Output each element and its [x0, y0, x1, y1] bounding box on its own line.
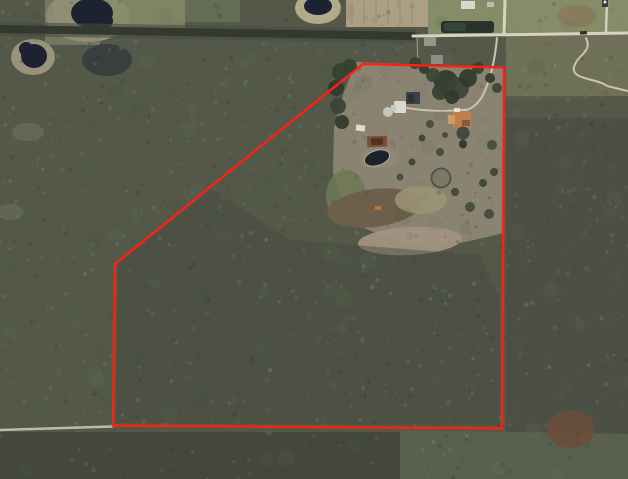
- canopy-speck: [592, 195, 596, 199]
- canopy-speck: [62, 224, 66, 228]
- canopy-speck: [229, 126, 232, 129]
- canopy-speck: [175, 341, 178, 344]
- canopy-speck: [446, 403, 450, 407]
- canopy-speck: [353, 113, 356, 116]
- canopy-blob: [196, 290, 211, 305]
- canopy-speck: [152, 206, 157, 211]
- canopy-speck: [571, 19, 573, 21]
- canopy-speck: [131, 240, 135, 244]
- canopy-speck: [588, 463, 591, 466]
- canopy-speck: [129, 362, 132, 365]
- canopy-speck: [397, 390, 401, 394]
- canopy-speck: [108, 447, 112, 451]
- canopy-speck: [54, 198, 56, 200]
- canopy-speck: [611, 241, 613, 243]
- canopy-blob: [131, 350, 145, 364]
- canopy-speck: [175, 162, 177, 164]
- canopy-speck: [438, 217, 440, 219]
- canopy-speck: [200, 167, 202, 169]
- canopy-speck: [236, 379, 238, 381]
- canopy-speck: [468, 398, 470, 400]
- canopy-speck: [404, 59, 406, 61]
- canopy-speck: [505, 264, 510, 269]
- canopy-speck: [152, 434, 156, 438]
- canopy-speck: [604, 91, 608, 95]
- canopy-speck: [1, 368, 5, 372]
- canopy-speck: [76, 430, 79, 433]
- canopy-blob: [587, 83, 594, 90]
- canopy-speck: [365, 122, 367, 124]
- canopy-speck: [216, 470, 218, 472]
- canopy-speck: [82, 359, 86, 363]
- canopy-speck: [614, 326, 616, 328]
- canopy-speck: [185, 196, 190, 201]
- canopy-speck: [364, 394, 368, 398]
- canopy-speck: [518, 84, 522, 88]
- canopy-speck: [590, 180, 592, 182]
- canopy-speck: [550, 455, 553, 458]
- canopy-speck: [538, 19, 542, 23]
- canopy-speck: [610, 461, 613, 464]
- canopy-speck: [263, 182, 266, 185]
- canopy-speck: [8, 338, 12, 342]
- canopy-speck: [368, 209, 370, 211]
- canopy-speck: [359, 175, 364, 180]
- canopy-speck: [494, 8, 497, 11]
- canopy-speck: [353, 50, 357, 54]
- canopy-speck: [11, 155, 15, 159]
- canopy-speck: [523, 202, 525, 204]
- canopy-blob: [370, 179, 385, 194]
- canopy-speck: [89, 227, 92, 230]
- canopy-speck: [612, 292, 615, 295]
- canopy-speck: [562, 195, 563, 196]
- canopy-speck: [292, 218, 295, 221]
- canopy-speck: [46, 308, 49, 311]
- canopy-speck: [448, 241, 452, 245]
- canopy-speck: [450, 5, 452, 7]
- canopy-blob: [85, 116, 95, 126]
- canopy-speck: [170, 447, 175, 452]
- canopy-speck: [592, 9, 596, 13]
- vehicle-on-road: [580, 31, 587, 35]
- canopy-speck: [68, 119, 71, 122]
- canopy-speck: [110, 355, 113, 358]
- canopy-speck: [201, 325, 203, 327]
- canopy-speck: [427, 235, 431, 239]
- canopy-speck: [619, 27, 621, 29]
- canopy-speck: [284, 17, 288, 21]
- canopy-speck: [206, 356, 209, 359]
- canopy-speck: [569, 456, 572, 459]
- canopy-speck: [139, 183, 143, 187]
- canopy-speck: [62, 38, 66, 42]
- canopy-speck: [461, 459, 465, 463]
- canopy-speck: [283, 329, 286, 332]
- canopy-speck: [392, 258, 395, 261]
- canopy-speck: [624, 319, 627, 322]
- canopy-speck: [261, 273, 264, 276]
- canopy-speck: [404, 403, 408, 407]
- canopy-speck: [396, 460, 397, 461]
- canopy-speck: [167, 377, 169, 379]
- canopy-speck: [544, 62, 546, 64]
- canopy-blob: [594, 205, 603, 214]
- canopy-speck: [512, 422, 514, 424]
- canopy-speck: [92, 466, 95, 469]
- canopy-blob: [196, 391, 211, 406]
- canopy-speck: [526, 246, 530, 250]
- canopy-speck: [524, 472, 526, 474]
- canopy-speck: [436, 190, 441, 195]
- canopy-speck: [572, 188, 577, 193]
- canopy-speck: [174, 339, 176, 341]
- canopy-speck: [469, 232, 472, 235]
- canopy-speck: [396, 147, 400, 151]
- canopy-speck: [279, 162, 283, 166]
- canopy-speck: [361, 206, 363, 208]
- canopy-speck: [60, 229, 64, 233]
- tree-canopy: [451, 188, 459, 196]
- canopy-speck: [207, 312, 209, 314]
- canopy-speck: [156, 209, 161, 214]
- canopy-speck: [25, 329, 27, 331]
- canopy-speck: [67, 350, 69, 352]
- canopy-speck: [617, 271, 619, 273]
- canopy-speck: [64, 292, 68, 296]
- canopy-speck: [232, 207, 236, 211]
- canopy-speck: [125, 302, 127, 304]
- canopy-speck: [487, 415, 490, 418]
- canopy-speck: [211, 77, 213, 79]
- canopy-speck: [488, 112, 490, 114]
- canopy-speck: [120, 79, 125, 84]
- canopy-speck: [583, 114, 586, 117]
- canopy-speck: [206, 224, 210, 228]
- canopy-speck: [396, 222, 398, 224]
- canopy-speck: [516, 147, 521, 152]
- canopy-speck: [186, 361, 188, 363]
- canopy-speck: [8, 67, 11, 70]
- canopy-speck: [482, 466, 484, 468]
- canopy-speck: [415, 246, 418, 249]
- canopy-speck: [384, 383, 387, 386]
- canopy-speck: [312, 435, 316, 439]
- canopy-speck: [283, 96, 286, 99]
- canopy-speck: [225, 372, 228, 375]
- canopy-speck: [595, 56, 597, 58]
- canopy-speck: [34, 240, 36, 242]
- canopy-speck: [63, 392, 66, 395]
- canopy-speck: [581, 97, 583, 99]
- canopy-blob: [355, 75, 373, 93]
- canopy-speck: [544, 83, 548, 87]
- tree-canopy: [490, 168, 498, 176]
- canopy-speck: [385, 416, 389, 420]
- canopy-speck: [584, 95, 589, 100]
- canopy-speck: [182, 442, 184, 444]
- canopy-speck: [133, 90, 137, 94]
- canopy-speck: [530, 99, 533, 102]
- canopy-speck: [248, 471, 252, 475]
- canopy-speck: [232, 96, 235, 99]
- tree-canopy: [487, 140, 497, 150]
- canopy-speck: [390, 140, 395, 145]
- canopy-speck: [253, 417, 255, 419]
- canopy-speck: [469, 163, 473, 167]
- canopy-speck: [26, 19, 28, 21]
- canopy-speck: [488, 197, 491, 200]
- canopy-speck: [42, 191, 45, 194]
- canopy-speck: [577, 175, 580, 178]
- canopy-speck: [249, 231, 254, 236]
- canopy-speck: [362, 264, 367, 269]
- canopy-speck: [445, 289, 447, 291]
- canopy-speck: [85, 373, 87, 375]
- canopy-speck: [144, 98, 147, 101]
- canopy-speck: [290, 74, 293, 77]
- canopy-speck: [613, 38, 617, 42]
- canopy-speck: [596, 400, 599, 403]
- canopy-speck: [339, 285, 343, 289]
- canopy-speck: [237, 470, 240, 473]
- canopy-speck: [388, 304, 390, 306]
- canopy-speck: [96, 122, 98, 124]
- canopy-speck: [81, 108, 86, 113]
- canopy-speck: [555, 113, 559, 117]
- canopy-speck: [490, 204, 493, 207]
- canopy-speck: [70, 283, 73, 286]
- canopy-speck: [67, 68, 70, 71]
- canopy-speck: [552, 3, 556, 7]
- canopy-blob: [19, 464, 32, 477]
- canopy-speck: [466, 159, 468, 161]
- canopy-blob: [123, 381, 129, 387]
- canopy-speck: [613, 356, 616, 359]
- canopy-speck: [176, 99, 179, 102]
- canopy-speck: [22, 399, 27, 404]
- canopy-speck: [35, 138, 39, 142]
- canopy-blob: [192, 5, 203, 16]
- canopy-speck: [386, 129, 388, 131]
- canopy-speck: [443, 452, 446, 455]
- canopy-speck: [243, 460, 248, 465]
- canopy-speck: [476, 299, 479, 302]
- canopy-speck: [76, 88, 78, 90]
- canopy-speck: [159, 278, 161, 280]
- canopy-speck: [494, 325, 496, 327]
- canopy-speck: [494, 134, 498, 138]
- canopy-speck: [47, 305, 49, 307]
- canopy-speck: [32, 155, 34, 157]
- canopy-speck: [8, 145, 11, 148]
- canopy-speck: [473, 172, 477, 176]
- canopy-speck: [609, 56, 614, 61]
- canopy-speck: [495, 295, 498, 298]
- canopy-speck: [433, 319, 435, 321]
- canopy-speck: [219, 319, 221, 321]
- canopy-speck: [566, 97, 571, 102]
- canopy-speck: [182, 239, 184, 241]
- canopy-speck: [559, 206, 562, 209]
- canopy-speck: [361, 275, 365, 279]
- canopy-speck: [401, 17, 403, 19]
- canopy-speck: [28, 242, 32, 246]
- canopy-speck: [472, 281, 476, 285]
- canopy-speck: [231, 11, 233, 13]
- canopy-blob: [332, 396, 342, 406]
- canopy-speck: [604, 382, 609, 387]
- canopy-speck: [509, 456, 511, 458]
- canopy-speck: [465, 219, 470, 224]
- canopy-speck: [51, 155, 55, 159]
- canopy-speck: [324, 207, 328, 211]
- canopy-speck: [371, 18, 375, 22]
- tree-canopy: [492, 83, 502, 93]
- canopy-speck: [75, 80, 76, 81]
- greenhouse-highlight: [444, 23, 466, 31]
- canopy-speck: [230, 63, 233, 66]
- canopy-speck: [150, 107, 154, 111]
- canopy-speck: [543, 79, 545, 81]
- canopy-speck: [108, 48, 112, 52]
- canopy-speck: [350, 405, 353, 408]
- canopy-speck: [12, 150, 15, 153]
- canopy-speck: [84, 333, 88, 337]
- canopy-speck: [10, 327, 13, 330]
- canopy-speck: [245, 79, 248, 82]
- canopy-speck: [338, 425, 340, 427]
- canopy-speck: [203, 297, 207, 301]
- canopy-speck: [476, 373, 480, 377]
- canopy-speck: [82, 182, 86, 186]
- canopy-speck: [418, 364, 423, 369]
- canopy-blob: [373, 270, 380, 277]
- canopy-speck: [204, 152, 207, 155]
- tree-canopy: [330, 98, 346, 114]
- pond-west-lobe: [19, 42, 33, 56]
- canopy-speck: [439, 310, 440, 311]
- canopy-speck: [57, 179, 59, 181]
- white-shed-small: [356, 124, 366, 131]
- canopy-speck: [605, 355, 609, 359]
- canopy-blob: [601, 302, 614, 315]
- canopy-speck: [622, 189, 624, 191]
- canopy-speck: [1, 252, 4, 255]
- canopy-speck: [491, 380, 493, 382]
- canopy-speck: [214, 100, 219, 105]
- gray-house-north-b: [431, 55, 443, 64]
- canopy-speck: [600, 316, 604, 320]
- canopy-speck: [532, 359, 537, 364]
- canopy-speck: [623, 5, 625, 7]
- canopy-speck: [486, 294, 489, 297]
- canopy-speck: [232, 411, 237, 416]
- canopy-speck: [585, 219, 588, 222]
- canopy-speck: [421, 448, 425, 452]
- canopy-speck: [237, 72, 238, 73]
- canopy-speck: [169, 379, 173, 383]
- canopy-blob: [306, 313, 313, 320]
- canopy-speck: [471, 357, 474, 360]
- canopy-speck: [214, 353, 216, 355]
- canopy-speck: [192, 262, 196, 266]
- canopy-speck: [183, 86, 186, 89]
- canopy-blob: [144, 85, 154, 95]
- canopy-speck: [441, 360, 445, 364]
- canopy-speck: [412, 146, 414, 148]
- canopy-speck: [221, 182, 224, 185]
- canopy-speck: [480, 85, 484, 89]
- canopy-speck: [376, 59, 379, 62]
- canopy-speck: [553, 325, 557, 329]
- canopy-speck: [106, 324, 108, 326]
- canopy-blob: [212, 2, 223, 13]
- canopy-speck: [478, 352, 480, 354]
- canopy-speck: [511, 39, 512, 40]
- canopy-speck: [167, 242, 171, 246]
- canopy-speck: [333, 340, 335, 342]
- canopy-speck: [145, 359, 147, 361]
- canopy-speck: [55, 260, 59, 264]
- canopy-speck: [237, 280, 242, 285]
- canopy-speck: [367, 380, 371, 384]
- canopy-speck: [169, 169, 174, 174]
- canopy-speck: [371, 374, 374, 377]
- canopy-speck: [382, 90, 386, 94]
- canopy-speck: [559, 293, 561, 295]
- canopy-speck: [166, 53, 169, 56]
- canopy-speck: [103, 338, 105, 340]
- canopy-speck: [173, 127, 176, 130]
- canopy-blob: [157, 281, 166, 290]
- canopy-speck: [436, 333, 440, 337]
- canopy-speck: [38, 323, 41, 326]
- canopy-speck: [600, 441, 602, 443]
- canopy-speck: [321, 242, 323, 244]
- canopy-speck: [121, 118, 123, 120]
- canopy-speck: [541, 324, 543, 326]
- canopy-speck: [435, 213, 439, 217]
- canopy-speck: [372, 421, 376, 425]
- canopy-speck: [475, 436, 477, 438]
- canopy-speck: [467, 268, 469, 270]
- canopy-speck: [261, 383, 263, 385]
- canopy-speck: [28, 422, 32, 426]
- canopy-speck: [465, 434, 469, 438]
- canopy-speck: [301, 13, 303, 15]
- canopy-speck: [565, 39, 568, 42]
- canopy-speck: [472, 44, 474, 46]
- canopy-speck: [612, 359, 614, 361]
- canopy-speck: [610, 247, 612, 249]
- canopy-speck: [393, 374, 395, 376]
- canopy-speck: [304, 444, 306, 446]
- canopy-speck: [196, 352, 201, 357]
- tree-canopy: [426, 120, 434, 128]
- canopy-speck: [50, 80, 53, 83]
- canopy-speck: [27, 259, 31, 263]
- canopy-speck: [305, 382, 307, 384]
- canopy-speck: [243, 256, 246, 259]
- canopy-speck: [607, 119, 610, 122]
- canopy-speck: [110, 375, 112, 377]
- canopy-speck: [9, 248, 12, 251]
- canopy-speck: [621, 71, 623, 73]
- canopy-speck: [268, 368, 272, 372]
- map-canvas[interactable]: [0, 0, 628, 479]
- round-outbuilding-small: [459, 140, 467, 149]
